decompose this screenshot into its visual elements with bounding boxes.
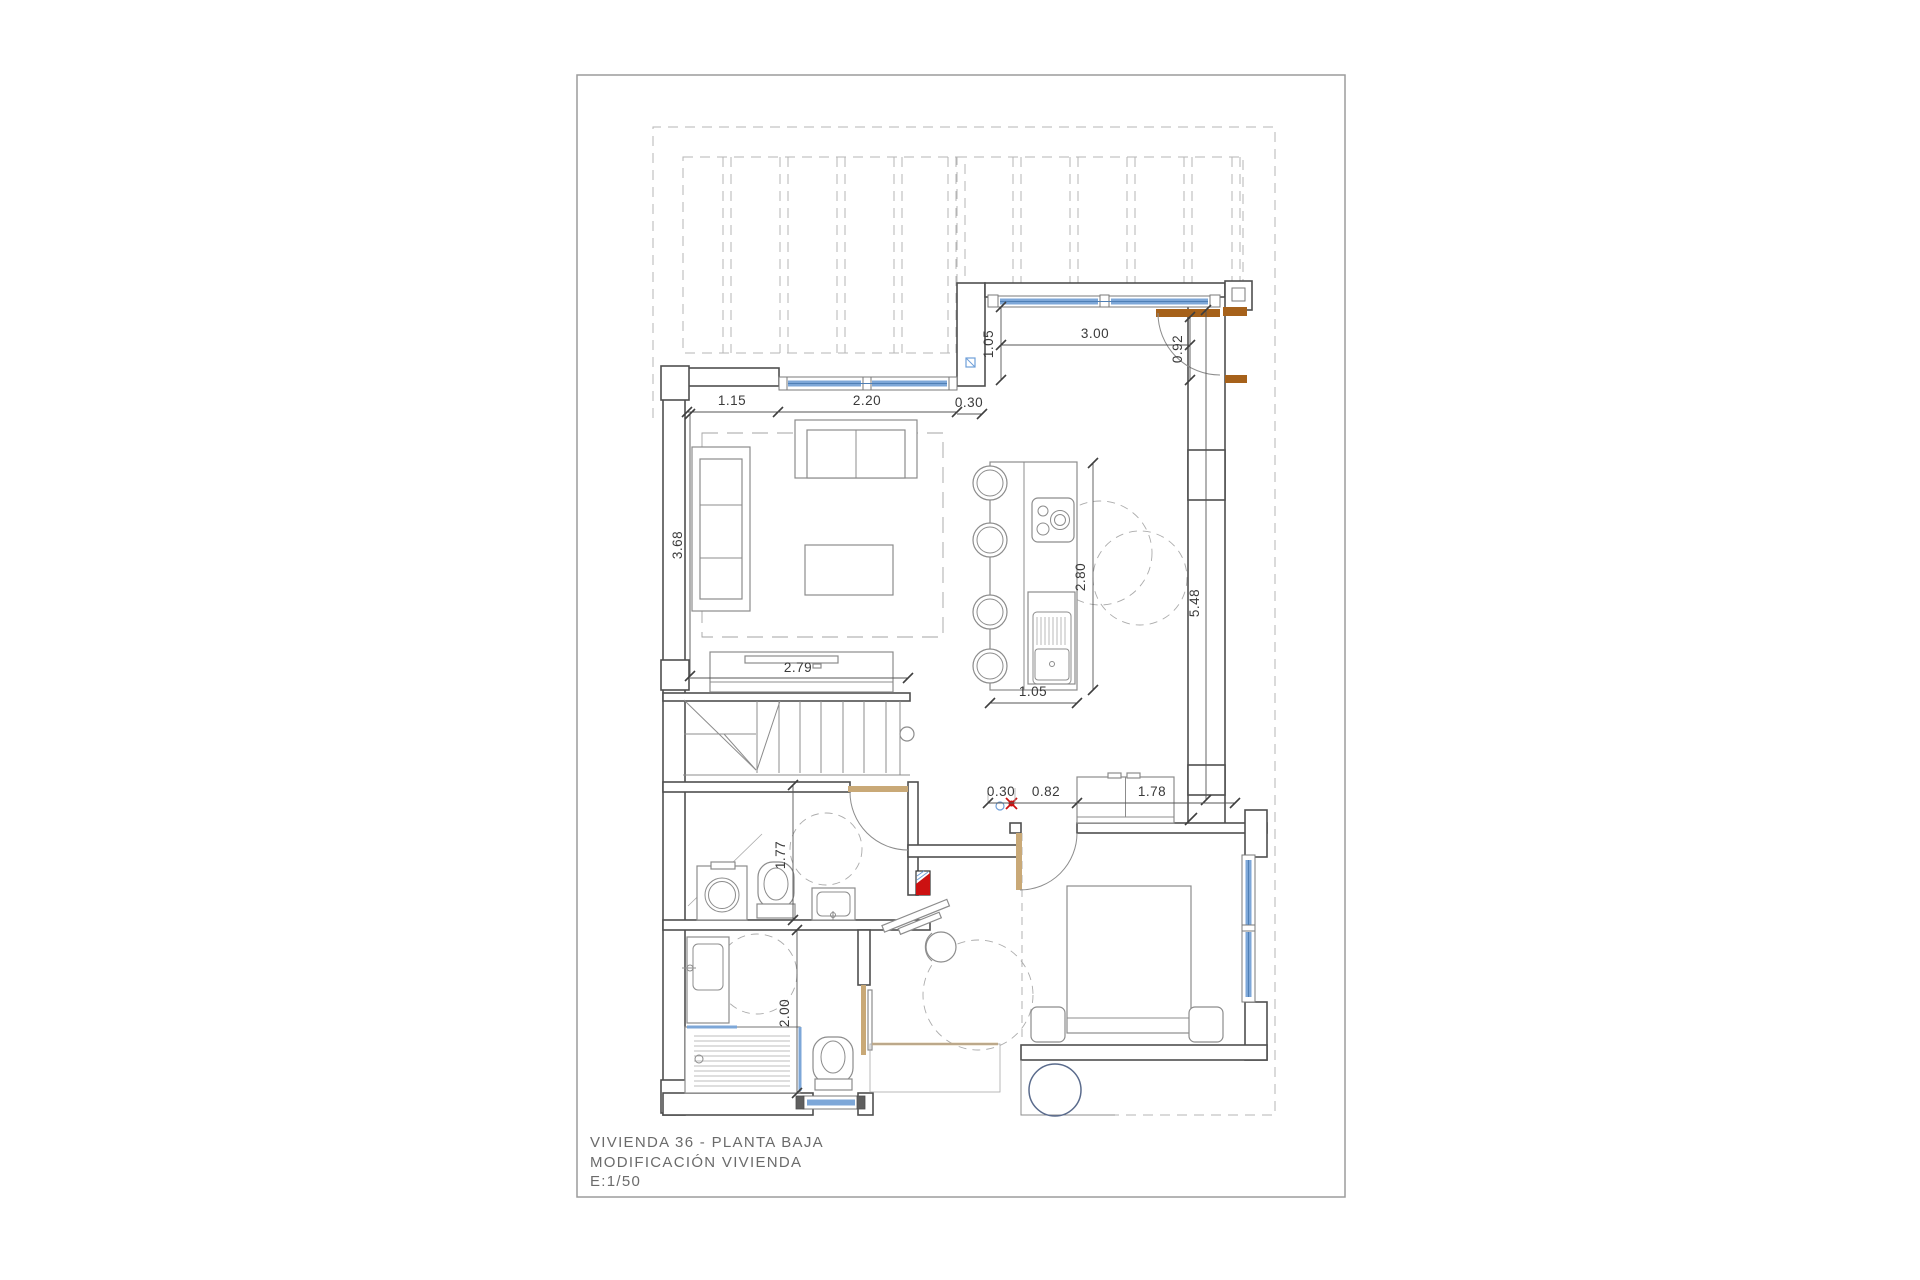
bathroom1-top-wall [663,782,850,792]
winder-line [757,701,780,770]
door-swing-arc [850,792,908,850]
dim-label: 5.48 [1187,589,1202,617]
entry-wall-horizontal [908,845,1021,857]
bottom-wall-left [663,1093,813,1115]
plan-title: VIVIENDA 36 - PLANTA BAJA [590,1134,824,1151]
vanity-2 [682,937,729,1023]
dim-label: 1.05 [981,330,996,358]
dim-label: 1.05 [1019,684,1047,699]
dim-label: 1.78 [1138,784,1166,799]
right-wall-block [1188,450,1225,500]
dimension-0-82: 0.82 [1015,784,1082,808]
wardrobe-handle [1108,773,1121,778]
title-block: VIVIENDA 36 - PLANTA BAJA MODIFICACIÓN V… [590,1134,824,1190]
dimension-0-92: 0.92 [1170,312,1195,385]
dim-label: 0.92 [1170,335,1185,363]
door-swing-arc [1158,313,1220,375]
dimension-0-30: 0.30 [955,395,987,419]
bedroom-bottom-wall [1021,1045,1267,1060]
nightstand [1189,1007,1223,1042]
door-stop [1225,375,1247,383]
door-leaf [848,786,908,792]
dim-label: 1.15 [718,393,746,408]
living-room-furniture [692,420,917,692]
dim-label: 3.68 [670,531,685,559]
blue-square-marker [966,358,975,367]
kitchen-sink [1028,592,1075,684]
door-pocket [1223,307,1247,316]
dim-label: 0.30 [955,395,983,410]
dim-label: 2.80 [1073,563,1088,591]
bedroom-pillar-ne [1245,810,1267,857]
cooktop [1032,498,1074,542]
glazing [807,1100,855,1106]
coffee-table [805,545,893,595]
toilet-2 [813,1037,853,1090]
bathroom-1 [697,862,855,920]
turning-circle-entry [790,813,862,885]
pillar-left-mid [661,660,689,690]
door-leaf [1016,833,1022,890]
dim-label: 2.00 [777,999,792,1027]
dimension-2-20: 2.20 [778,393,962,417]
bedroom-door-jamb [1010,823,1021,833]
red-cross-marker [996,798,1017,810]
dim-label: 3.00 [1081,326,1109,341]
dimension-1-15: 1.15 [682,393,783,417]
dim-label: 0.82 [1032,784,1060,799]
dim-label: 1.77 [773,841,788,869]
wardrobe-handle [1127,773,1140,778]
nightstand [1031,1007,1065,1042]
door-rail [868,990,872,1050]
toilet-1 [757,862,795,918]
bathroom-window [796,1096,865,1109]
kitchen-island [973,462,1077,690]
dim-label: 2.20 [853,393,881,408]
door-leaf [861,985,866,1055]
dimension-3-00: 3.00 [996,326,1195,350]
winder-line [684,700,756,770]
plan-subtitle: MODIFICACIÓN VIVIENDA [590,1154,802,1171]
plan-scale: E:1/50 [590,1173,641,1190]
bathroom2-right-wall [858,930,870,985]
bed [1031,886,1223,1042]
kitchen-window [988,295,1220,307]
bathroom-2 [682,937,853,1093]
dim-label: 2.79 [784,660,812,675]
sofa-top [795,420,917,478]
stair-newel [900,727,914,741]
shower [685,1027,800,1093]
living-window [779,377,957,390]
stair-top-wall [663,693,910,701]
door-swing-arc [1020,833,1077,890]
dim-label: 0.30 [987,784,1015,799]
sofa-left [692,447,750,611]
winder-line [724,734,756,770]
bedroom-top-wall [1077,823,1267,833]
porch-step [870,1044,1000,1092]
electrical-panel-marker [916,871,930,895]
right-wall-end-block [1188,765,1225,795]
planter [1029,1064,1081,1116]
pillar-top-right-core [1232,288,1245,301]
bathroom1-door [848,786,908,850]
left-exterior-wall [663,386,685,1115]
bedroom-window [1242,855,1255,1002]
pillar-top-left [661,366,689,400]
washbasin-1 [812,888,855,920]
washing-machine [697,862,747,920]
door-leaf [1156,309,1220,317]
bedroom-door [1016,833,1077,890]
floor-plan-canvas: 1.15 2.20 0.30 1.05 3.00 0.92 [0,0,1920,1280]
round-stool [925,932,956,962]
turning-circle-kitchen-2 [1093,531,1187,625]
